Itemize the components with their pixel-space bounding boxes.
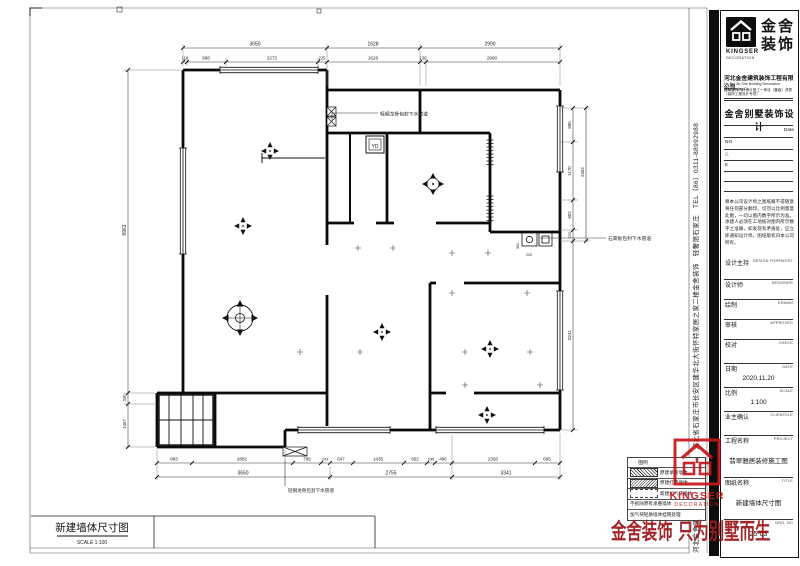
dim-label: 1170 xyxy=(567,166,572,176)
dim-label: 2990 xyxy=(484,42,495,48)
sheet-scale: SCALE 1:100 xyxy=(77,540,108,546)
disclaimer: 尊本公司设计师之图纸概不得随意将任何部分翻印。切勿以比例量度此图，一切以图内数字… xyxy=(725,199,794,247)
grid-plus-marks xyxy=(297,245,543,388)
watermark-slogan: 金舍装饰 只为别墅而生 xyxy=(611,519,772,546)
note-top-pipe: 轻钢龙骨包封下水管道 xyxy=(380,111,428,118)
dim-label: 680 xyxy=(567,121,572,129)
watermark-kingser-text: KINGSER xyxy=(668,491,726,502)
dim-label: 1435 xyxy=(373,457,384,462)
title-block: KINGSER DECORATION 金舍 装饰 河北金舍建筑装饰工程有限公司 … xyxy=(720,10,799,558)
dim-label: 2272 xyxy=(267,56,278,61)
dimension-lines xyxy=(124,44,590,480)
flue-box: YD xyxy=(366,136,384,153)
date-value: 2020.11.20 xyxy=(724,375,793,382)
dim-label: 225 xyxy=(319,56,327,61)
legend-label: 加气块轻质墙体挂网处理 xyxy=(630,512,705,518)
kingser-watermark-icon xyxy=(673,438,721,486)
dim-label: 2882 xyxy=(237,457,248,462)
dim-label: 647 xyxy=(337,457,345,462)
field-date: 日期 DATE 2020.11.20 xyxy=(724,363,793,388)
brand-name-1: 金舍 xyxy=(761,19,795,35)
dim-label: 1628 xyxy=(368,56,379,61)
legend-row: 加气块轻质墙体挂网处理 xyxy=(628,509,705,520)
scale-value: 1:100 xyxy=(724,399,793,406)
legend-swatch-hatch xyxy=(630,468,658,477)
flue-label: YD xyxy=(372,144,379,150)
stairs xyxy=(159,395,213,445)
door-openings xyxy=(325,221,474,396)
dim-label: 5241 xyxy=(567,330,572,340)
field-designer: 设计师 DESIGNER xyxy=(724,279,793,300)
legend-swatch-hatch xyxy=(630,479,658,488)
dim-label: 2350 xyxy=(488,457,499,462)
legend-swatch-dashed xyxy=(630,489,658,498)
dim-label: 2990 xyxy=(487,56,498,61)
walls xyxy=(157,70,560,447)
field-scale: 比例 SCALE 1:100 xyxy=(724,387,793,412)
sheet-title-box: 新建墙体尺寸图 SCALE 1:100 xyxy=(55,521,129,546)
sheet-title: 新建墙体尺寸图 xyxy=(55,521,129,534)
dim-label: 652 xyxy=(411,457,419,462)
rev-mark: △ xyxy=(725,151,729,157)
kitchen-sink xyxy=(522,233,552,246)
dim-label: 695 xyxy=(543,457,551,462)
dim-label: 130 xyxy=(420,56,428,61)
dim-label: 3650 xyxy=(237,471,248,477)
dimension-labels: 3650 1628 2990 110 968 2272 225 1628 130… xyxy=(122,42,585,477)
dim-label: 302 xyxy=(516,243,520,249)
note-right-pipe: 石膏板包封下水管道 xyxy=(608,235,651,242)
field-clientele: 业主确认 CLIENTELE xyxy=(724,411,793,436)
dim-label: 9963 xyxy=(122,224,128,235)
field-project: 工程名称 PROJECT 翡翠雅居装修施工图 xyxy=(724,435,793,478)
date-label: Date xyxy=(784,128,794,133)
dim-label: 1628 xyxy=(367,42,378,48)
rev-e: E xyxy=(725,162,728,167)
windows xyxy=(179,66,564,434)
legend-header: 图例 xyxy=(630,459,656,466)
dim-label: 968 xyxy=(202,56,210,61)
brand-kingser: KINGSER xyxy=(726,49,759,56)
dim-label: 602 xyxy=(567,211,572,219)
field-approved: 审核 APPROVED xyxy=(724,319,793,340)
brand-decoration: DECORATION xyxy=(726,56,759,61)
no-label: NO. xyxy=(725,140,734,145)
dim-label: 795 xyxy=(303,457,311,462)
field-drawn: 绘制 DRAWN xyxy=(724,299,793,320)
brand-name-2: 装饰 xyxy=(761,37,795,53)
dim-label: 243 xyxy=(322,457,329,462)
brand-header: KINGSER DECORATION xyxy=(726,17,759,61)
note-bottom-pipe: 轻钢龙骨包封下水管道 xyxy=(288,487,334,494)
drawing-title-value: 新建墙体尺寸图 xyxy=(724,497,793,507)
kingser-watermark: KINGSER DECORATION xyxy=(668,438,726,508)
partition-line xyxy=(262,153,325,163)
drawing-sheet: 新建墙体尺寸图 SCALE 1:100 xyxy=(0,0,800,566)
project-name: 翡翠雅居装修施工图 xyxy=(724,455,793,465)
dim-label: 220 xyxy=(567,231,572,238)
dim-label: 3341 xyxy=(500,471,511,477)
dim-label: 330 xyxy=(122,394,127,402)
watermark-decoration-text: DECORATION xyxy=(668,502,726,508)
dim-label: 220 xyxy=(526,253,532,257)
qualification: 建筑装饰内外设计施工一体化（壹级）资质（装饰工程设计专项） xyxy=(724,88,795,97)
dim-label: 110 xyxy=(182,56,189,61)
dim-label: 2452 xyxy=(580,167,585,177)
dim-label: 496 xyxy=(439,457,447,462)
dim-label: 3650 xyxy=(249,42,260,48)
dim-label: 235 xyxy=(428,457,435,462)
dim-label: 983 xyxy=(170,457,178,462)
field-check: 校对 CHECK xyxy=(724,339,793,364)
dim-label: 1467 xyxy=(122,419,127,429)
field-design-foremost: 设计主持 DESIGN FOREMOST xyxy=(724,257,793,280)
field-drawing-title: 图纸名称 TITLE 新建墙体尺寸图 xyxy=(724,477,793,520)
kingser-logo-icon xyxy=(726,17,756,47)
dim-label: 2755 xyxy=(385,471,396,477)
